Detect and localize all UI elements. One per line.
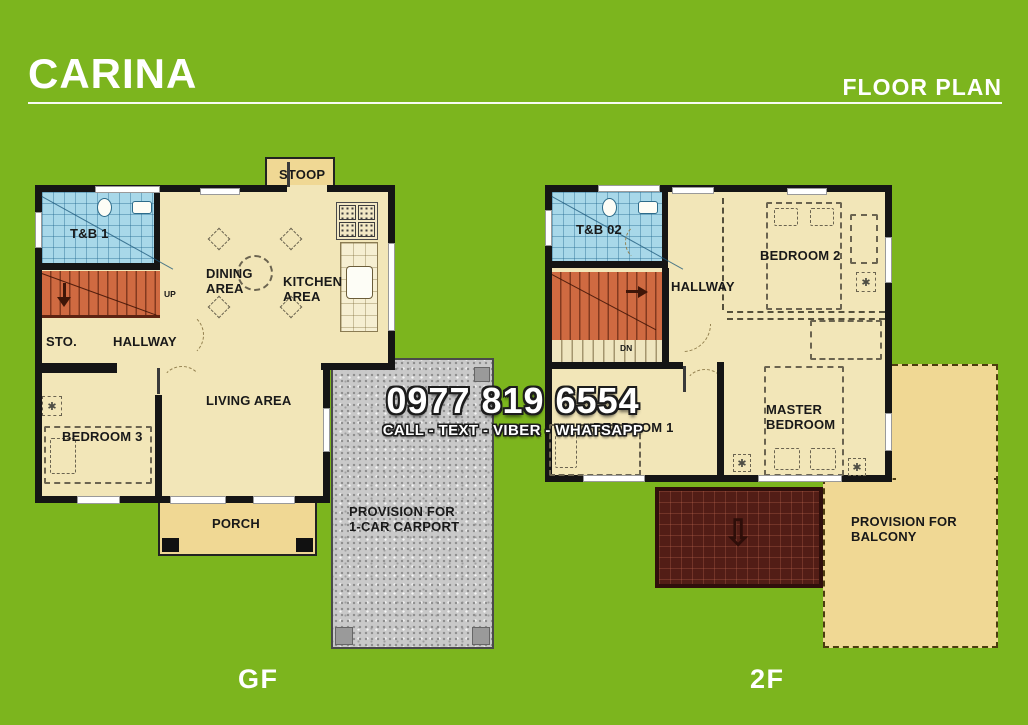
phone-number: 0977 819 6554 xyxy=(368,382,658,420)
burner-icon xyxy=(339,222,356,237)
window xyxy=(885,237,892,283)
pillow-outline xyxy=(774,208,798,226)
window xyxy=(323,408,330,452)
stove-icon xyxy=(336,202,378,240)
2f-bedroom1-wall xyxy=(545,362,683,369)
window xyxy=(583,475,645,482)
burner-icon xyxy=(358,222,375,237)
room-label-tb1: T&B 1 xyxy=(70,226,109,241)
gf-bathroom: T&B 1 xyxy=(42,192,160,270)
room-label-storage: STO. xyxy=(46,334,77,349)
room-label-living: LIVING AREA xyxy=(206,393,292,408)
pillow-outline xyxy=(555,434,577,468)
room-label-dining: DINING AREA xyxy=(206,266,253,297)
room-label-hallway-2f: HALLWAY xyxy=(671,279,735,294)
porch-door xyxy=(170,496,226,504)
room-label-tb02: T&B 02 xyxy=(576,222,622,237)
porch-column xyxy=(296,538,313,552)
stair-stringer-line xyxy=(552,274,657,330)
room-label-hallway-gf: HALLWAY xyxy=(113,334,177,349)
carport-corner-pad xyxy=(472,627,490,645)
header-subtitle: FLOOR PLAN xyxy=(843,74,1003,101)
gf-storage-wall xyxy=(35,366,117,373)
balcony-area-upper xyxy=(892,364,998,482)
window xyxy=(885,413,892,451)
window xyxy=(35,212,42,248)
2f-master-wall xyxy=(717,362,724,482)
room-label-balcony: PROVISION FOR BALCONY xyxy=(851,514,957,545)
porch-pad: PORCH xyxy=(158,498,317,556)
gf-staircase xyxy=(42,271,160,318)
gf-open-plan-junction xyxy=(117,361,321,372)
partition-line xyxy=(727,311,885,320)
balcony-junction xyxy=(896,473,994,484)
kitchen-sink-icon xyxy=(346,266,373,299)
window xyxy=(95,186,160,193)
ceiling-fan-icon: ✱ xyxy=(42,396,62,416)
door-leaf xyxy=(683,366,686,392)
door-leaf xyxy=(287,162,290,187)
gf-bedroom3-wall xyxy=(155,395,162,503)
stairs-up-label: UP xyxy=(164,289,176,299)
room-label-stoop: STOOP xyxy=(279,167,325,182)
door-swing-arc xyxy=(625,222,665,262)
window xyxy=(77,496,120,504)
window xyxy=(200,188,240,195)
pillow-outline xyxy=(810,208,834,226)
stoop-door-opening xyxy=(287,185,327,193)
stair-stringer-line xyxy=(42,273,157,316)
toilet-icon xyxy=(97,198,112,217)
2f-staircase xyxy=(552,272,662,340)
floor-label-gf: GF xyxy=(238,664,279,695)
door-swing-arc xyxy=(160,366,204,410)
room-label-master: MASTER BEDROOM xyxy=(766,402,835,433)
porch-roof: ⇩ xyxy=(655,487,823,588)
ceiling-fan-icon: ✱ xyxy=(733,454,751,472)
kitchen-counter xyxy=(340,242,378,332)
room-label-bedroom3: BEDROOM 3 xyxy=(62,429,143,444)
floor-label-2f: 2F xyxy=(750,664,785,695)
window xyxy=(253,496,295,504)
cabinet-outline xyxy=(850,214,878,264)
balcony-down-arrow-icon: ⇩ xyxy=(723,515,753,551)
carport-corner-pad xyxy=(335,627,353,645)
window xyxy=(787,188,827,195)
burner-icon xyxy=(339,205,356,220)
room-label-kitchen: KITCHEN AREA xyxy=(283,274,342,305)
page-title: CARINA xyxy=(28,50,197,98)
window xyxy=(758,475,842,482)
ceiling-fan-icon: ✱ xyxy=(848,458,866,476)
contact-channels: CALL - TEXT - VIBER - WHATSAPP xyxy=(368,422,658,439)
right-arrowhead-icon xyxy=(638,286,648,298)
sink-icon xyxy=(638,201,658,214)
burner-icon xyxy=(358,205,375,220)
kitchen-window xyxy=(388,243,395,331)
closet-outline xyxy=(810,320,882,360)
toilet-icon xyxy=(602,198,617,217)
balcony-area-lower xyxy=(823,478,998,648)
pillow-outline xyxy=(810,448,836,470)
window xyxy=(545,210,552,246)
phone-overlay: 0977 819 6554 CALL - TEXT - VIBER - WHAT… xyxy=(368,382,658,439)
window xyxy=(672,187,714,194)
room-label-porch: PORCH xyxy=(212,516,260,531)
door-leaf xyxy=(157,368,160,394)
pillow-outline xyxy=(774,448,800,470)
2f-stair-wall xyxy=(662,268,669,368)
sink-icon xyxy=(132,201,152,214)
porch-column xyxy=(162,538,179,552)
room-label-bedroom2: BEDROOM 2 xyxy=(760,248,841,263)
header-divider xyxy=(28,102,1002,104)
stairs-down-label: DN xyxy=(620,343,632,353)
room-label-carport: PROVISION FOR 1-CAR CARPORT xyxy=(349,504,459,535)
floor-plan-poster: CARINA FLOOR PLAN STOOP T&B 1 UP STO xyxy=(0,0,1028,725)
window xyxy=(598,185,660,192)
ceiling-fan-icon: ✱ xyxy=(856,272,876,292)
down-arrowhead-icon xyxy=(57,297,71,307)
